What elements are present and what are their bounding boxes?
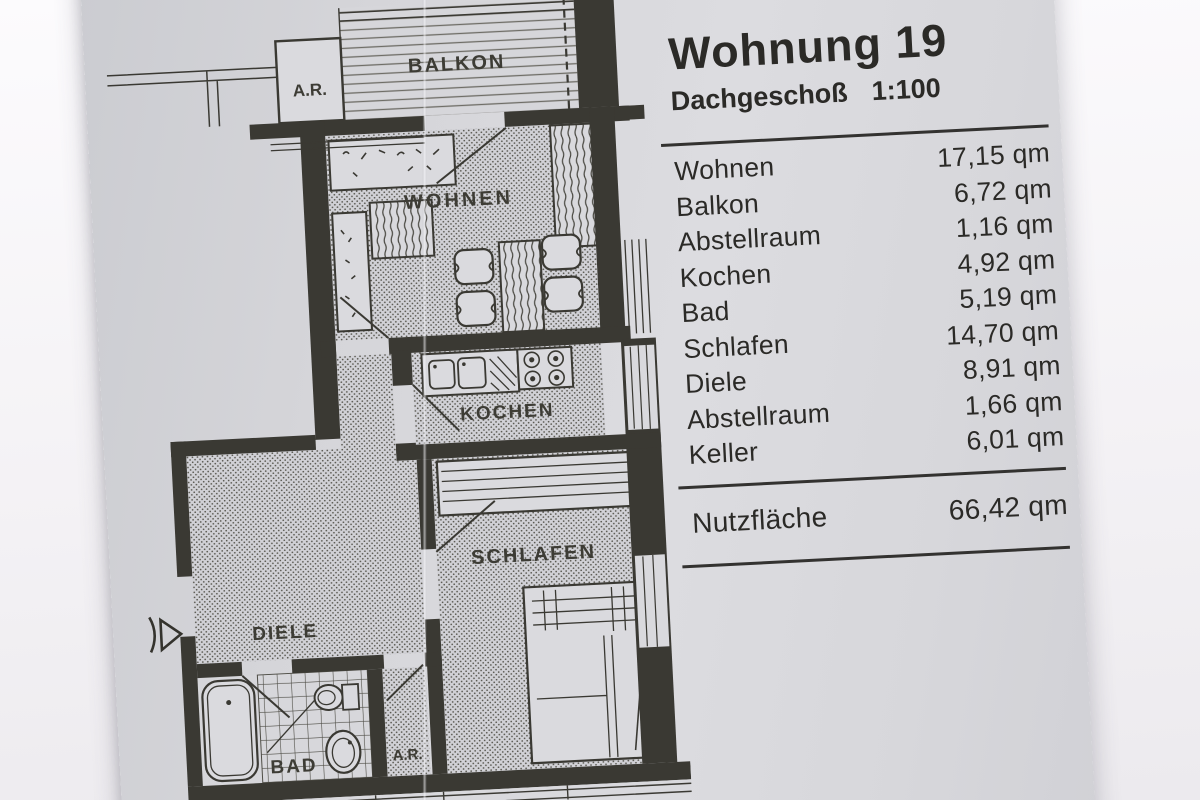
entrance-arrow-icon — [149, 616, 182, 653]
label-ar-top: A.R. — [292, 80, 327, 101]
room-area: 14,70 qm — [945, 313, 1060, 354]
room-area: 4,92 qm — [957, 242, 1057, 282]
room-area: 5,19 qm — [958, 277, 1058, 317]
room-name: Balkon — [675, 186, 760, 226]
window-band-right-upper — [625, 239, 651, 334]
photo-backdrop: A.R. BALKON WOHNEN KOCHEN SCHLAFEN DIELE… — [0, 0, 1200, 800]
apartment-title: Wohnung 19 — [667, 10, 1045, 79]
room-area: 8,91 qm — [962, 348, 1062, 388]
room-area: 1,16 qm — [955, 206, 1055, 246]
total-label: Nutzfläche — [691, 496, 828, 545]
label-bad: BAD — [270, 755, 318, 778]
legend: Wohnung 19 Dachgeschoß1:100 Wohnen17,15 … — [667, 10, 1070, 575]
total-area: 66,42 qm — [948, 483, 1069, 531]
room-name: Schlafen — [683, 326, 790, 367]
plan-scale: 1:100 — [871, 73, 941, 106]
room-area: 6,72 qm — [953, 171, 1053, 211]
total-row: Nutzfläche 66,42 qm — [691, 477, 1069, 552]
corridor-upper — [336, 354, 396, 449]
room-name: Abstellraum — [686, 395, 831, 438]
room-name: Wohnen — [674, 149, 776, 190]
room-name: Bad — [681, 294, 731, 332]
label-ar-bottom: A.R. — [392, 746, 423, 764]
floor-plan: A.R. BALKON WOHNEN KOCHEN SCHLAFEN DIELE… — [104, 0, 692, 800]
room-name: Diele — [684, 364, 748, 403]
area-rows: Wohnen17,15 qm Balkon6,72 qm Abstellraum… — [674, 135, 1066, 473]
room-name: Keller — [688, 434, 759, 473]
floor-name: Dachgeschoß — [670, 77, 848, 116]
room-area: 1,66 qm — [964, 384, 1064, 424]
room-name: Abstellraum — [677, 218, 822, 261]
room-area: 6,01 qm — [966, 419, 1066, 459]
room-area: 17,15 qm — [936, 135, 1051, 176]
balcony-railing — [107, 67, 280, 132]
paper-sheet: A.R. BALKON WOHNEN KOCHEN SCHLAFEN DIELE… — [79, 0, 1097, 800]
label-diele: DIELE — [252, 621, 319, 645]
room-name: Kochen — [679, 256, 772, 296]
